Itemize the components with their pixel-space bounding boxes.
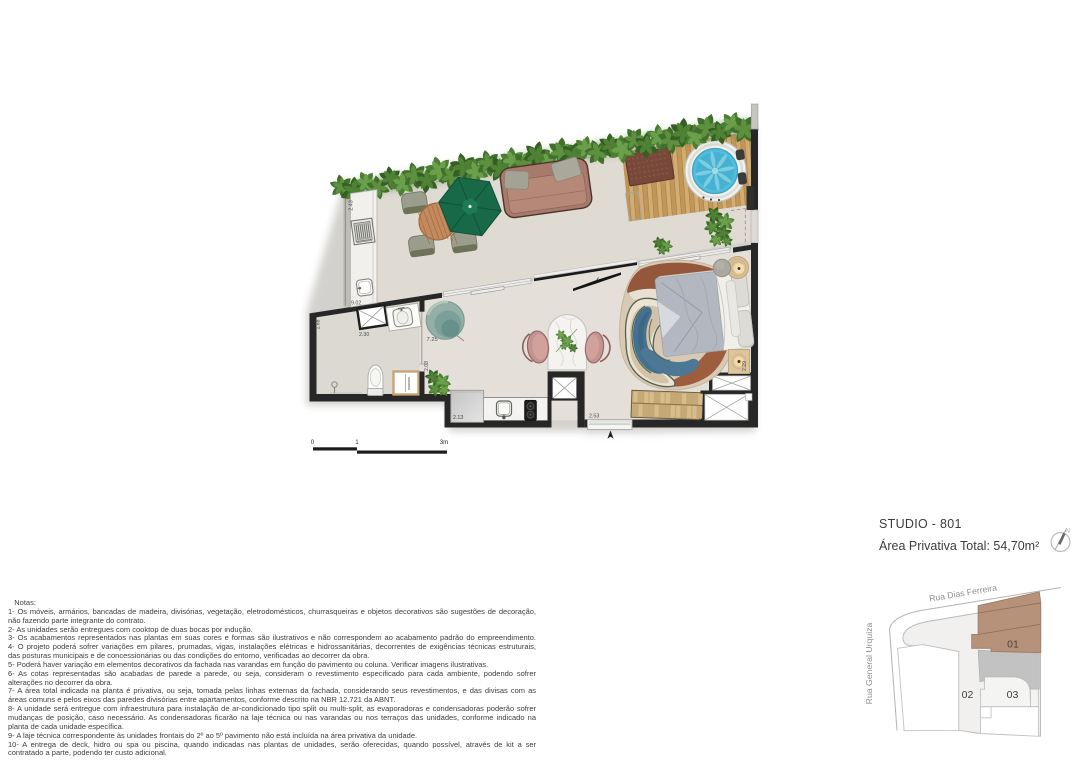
svg-text:3m: 3m	[440, 439, 449, 446]
svg-text:9.02: 9.02	[351, 301, 361, 307]
svg-text:0: 0	[311, 439, 315, 446]
svg-text:1.68: 1.68	[316, 319, 322, 329]
svg-text:2.13: 2.13	[453, 415, 463, 421]
svg-text:02: 02	[962, 689, 974, 701]
svg-text:2.08: 2.08	[424, 361, 430, 371]
svg-text:2.29: 2.29	[742, 361, 748, 371]
svg-text:Rua General Urquiza: Rua General Urquiza	[864, 623, 874, 705]
svg-text:2.30: 2.30	[359, 332, 369, 338]
svg-text:N: N	[1065, 528, 1070, 535]
svg-text:03: 03	[1007, 689, 1019, 701]
svg-text:7.25: 7.25	[427, 337, 438, 343]
svg-text:1: 1	[355, 439, 359, 446]
svg-text:2.53: 2.53	[589, 414, 599, 420]
svg-text:2.43: 2.43	[349, 200, 355, 210]
svg-text:Rua Dias Ferreira: Rua Dias Ferreira	[928, 582, 997, 603]
svg-text:01: 01	[1007, 639, 1019, 651]
